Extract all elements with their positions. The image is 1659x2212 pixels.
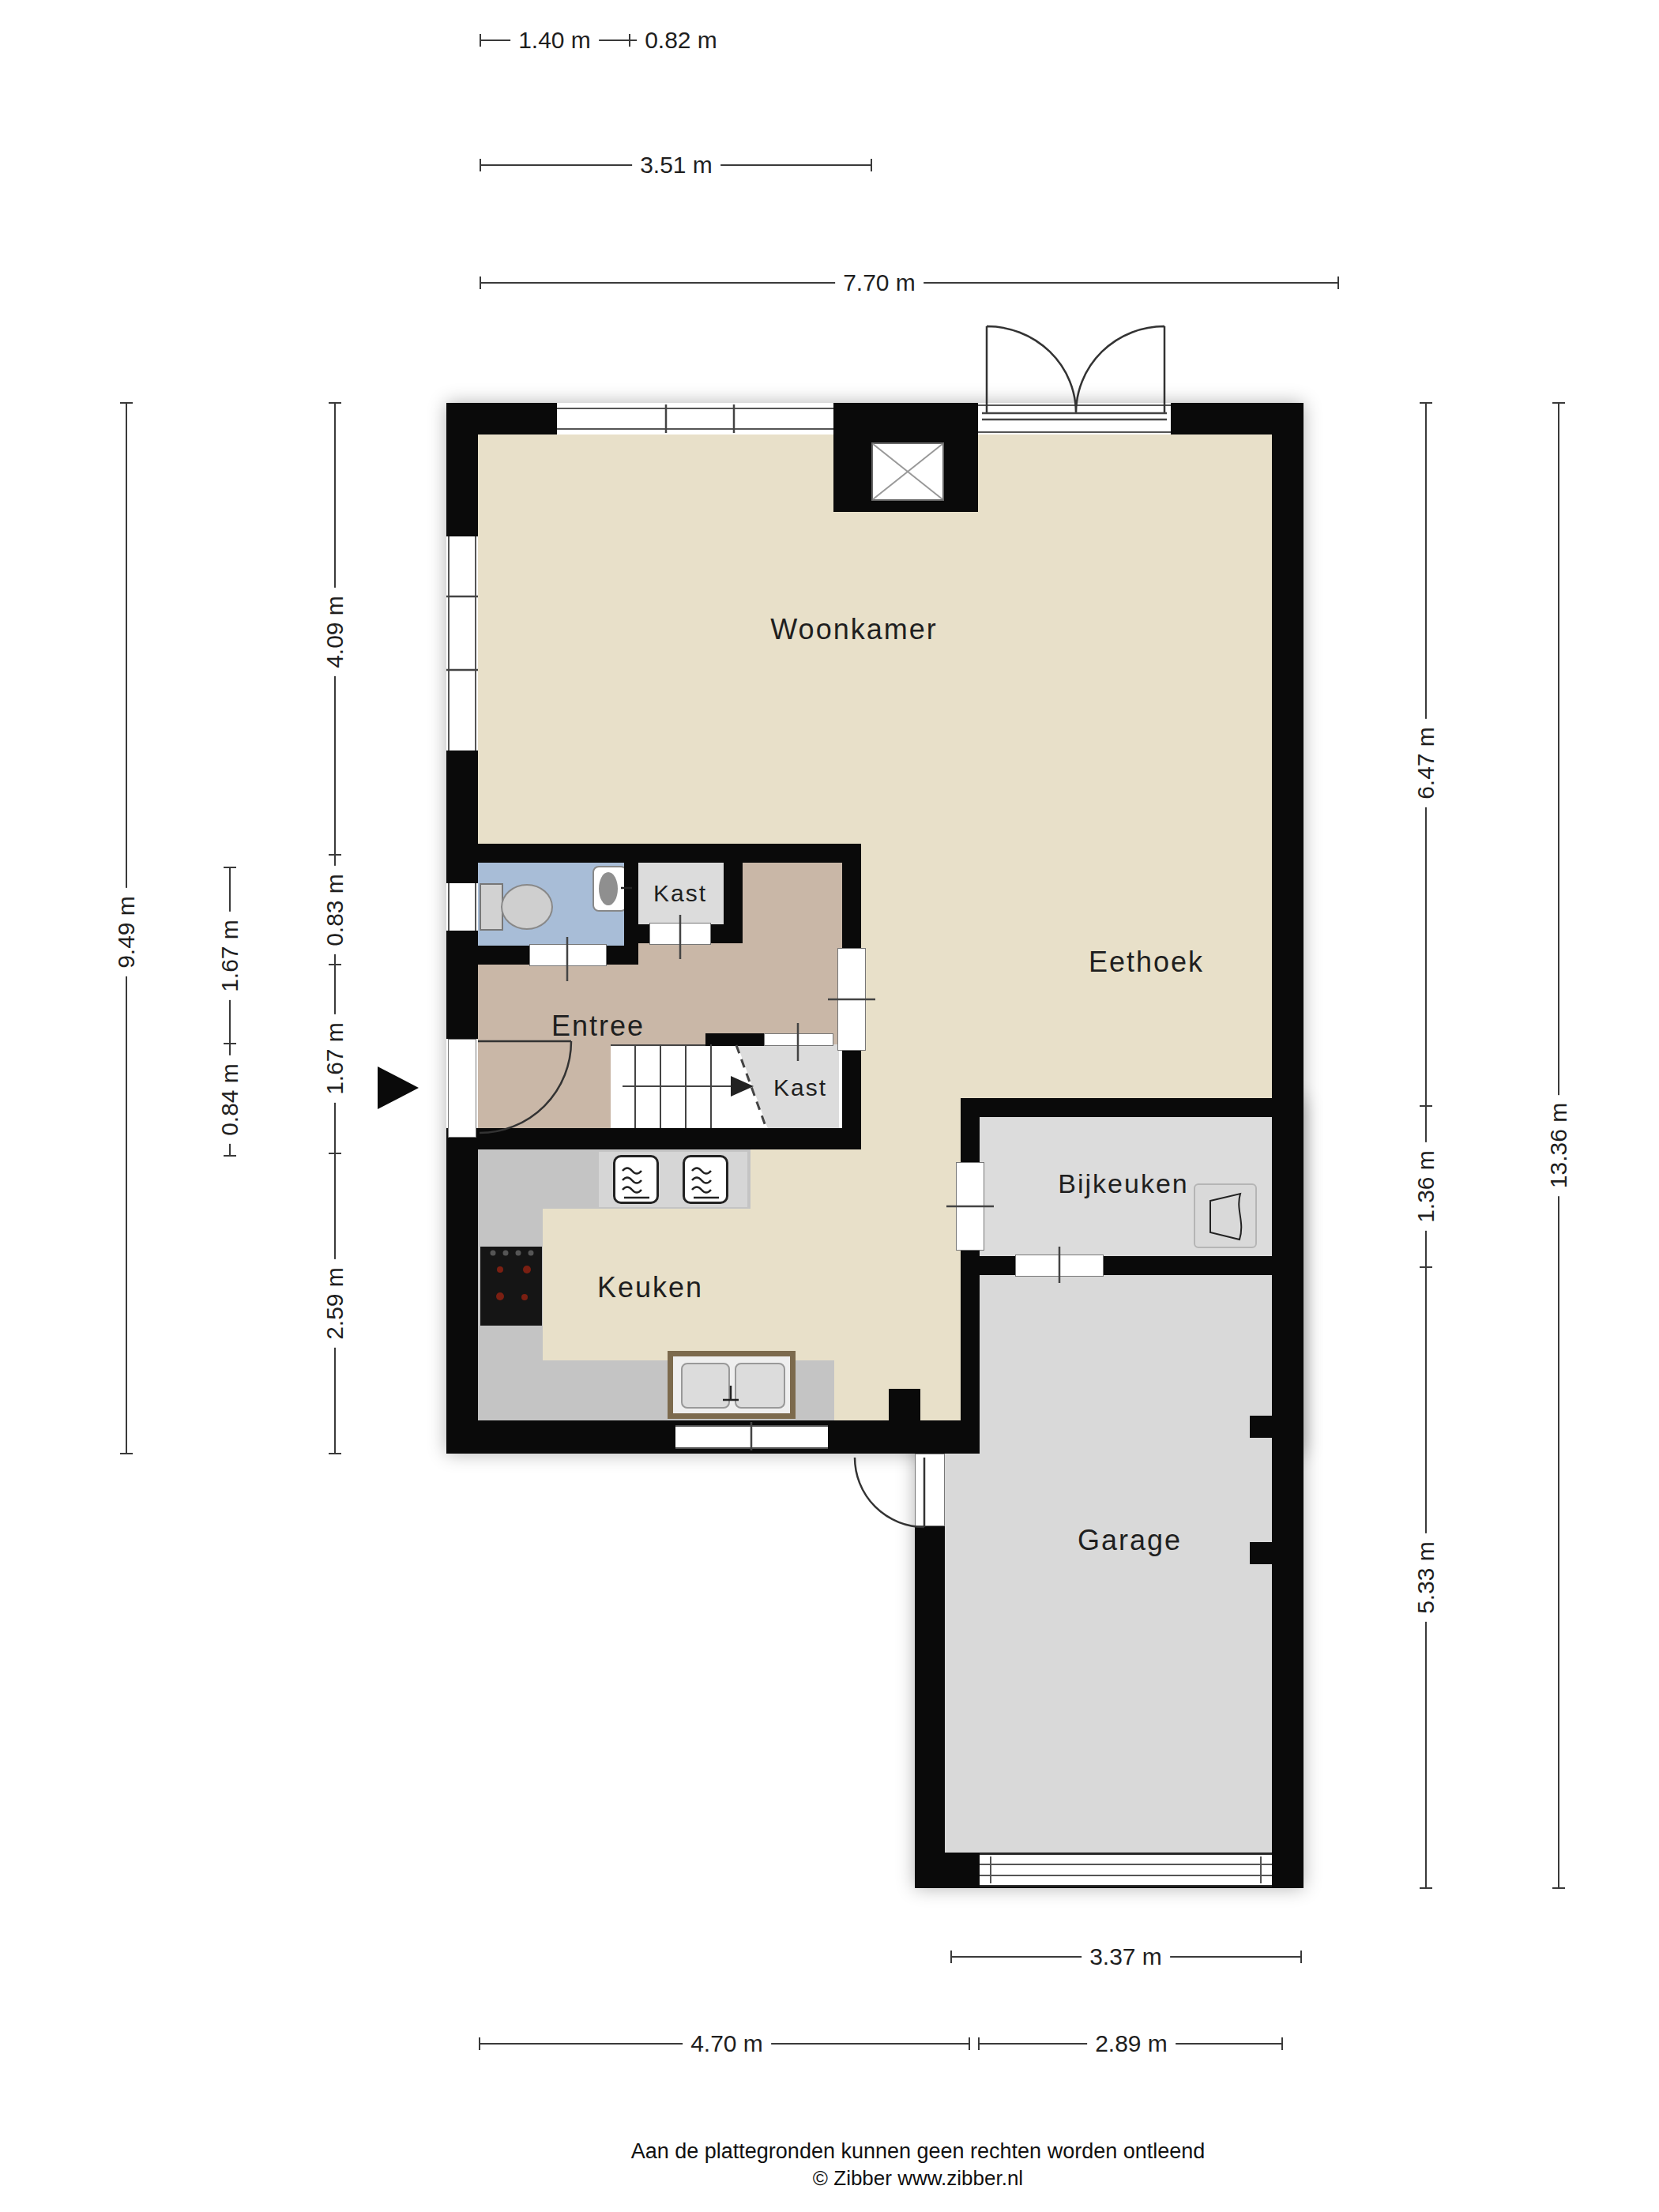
room-label-eethoek: Eethoek xyxy=(1089,946,1204,979)
room-label-woonkamer: Woonkamer xyxy=(770,613,937,646)
floorplan-page: { "rooms": { "woonkamer": {"label": "Woo… xyxy=(0,0,1659,2212)
dim-label: 3.51 m xyxy=(632,152,720,179)
garage-door-lines xyxy=(980,1856,1272,1883)
room-label-kast-trap: Kast xyxy=(773,1074,827,1101)
entrance-arrow-icon xyxy=(378,1066,419,1109)
dim-label: 9.49 m xyxy=(113,888,140,976)
dim-label: 0.84 m xyxy=(216,1055,243,1144)
room-label-keuken: Keuken xyxy=(597,1271,703,1304)
dim-label: 5.33 m xyxy=(1413,1533,1439,1622)
dim-label: 7.70 m xyxy=(835,269,924,296)
burner-centers xyxy=(496,1266,531,1300)
dim-label: 1.40 m xyxy=(510,27,599,54)
dim-label: 13.36 m xyxy=(1545,1095,1572,1196)
dim-label: 3.37 m xyxy=(1082,1943,1170,1970)
dim-label: 1.67 m xyxy=(216,912,243,1000)
room-label-entree: Entree xyxy=(551,1010,645,1043)
chimney-cross xyxy=(873,444,942,499)
dim-label: 0.83 m xyxy=(322,866,348,954)
dim-label: 4.70 m xyxy=(683,2030,771,2057)
plan-linework xyxy=(0,0,1659,2212)
stairs-arrow-icon xyxy=(731,1076,754,1097)
room-label-garage: Garage xyxy=(1078,1524,1182,1557)
dim-label: 4.09 m xyxy=(322,588,348,676)
opening-ticks xyxy=(446,404,1167,1450)
dim-label: 0.82 m xyxy=(637,27,725,54)
footer-disclaimer: Aan de plattegronden kunnen geen rechten… xyxy=(631,2139,1206,2164)
room-label-kast-boven: Kast xyxy=(653,880,707,907)
dim-label: 1.67 m xyxy=(322,1014,348,1103)
room-label-bijkeuken: Bijkeuken xyxy=(1058,1168,1188,1199)
cooktop-details xyxy=(491,1251,534,1256)
dim-label: 6.47 m xyxy=(1413,719,1439,807)
door-swing-icon xyxy=(478,326,1164,1527)
dim-label: 1.36 m xyxy=(1413,1142,1439,1231)
dim-label: 2.89 m xyxy=(1087,2030,1176,2057)
dim-label: 2.59 m xyxy=(322,1259,348,1348)
footer-copyright: © Zibber www.zibber.nl xyxy=(813,2166,1023,2191)
